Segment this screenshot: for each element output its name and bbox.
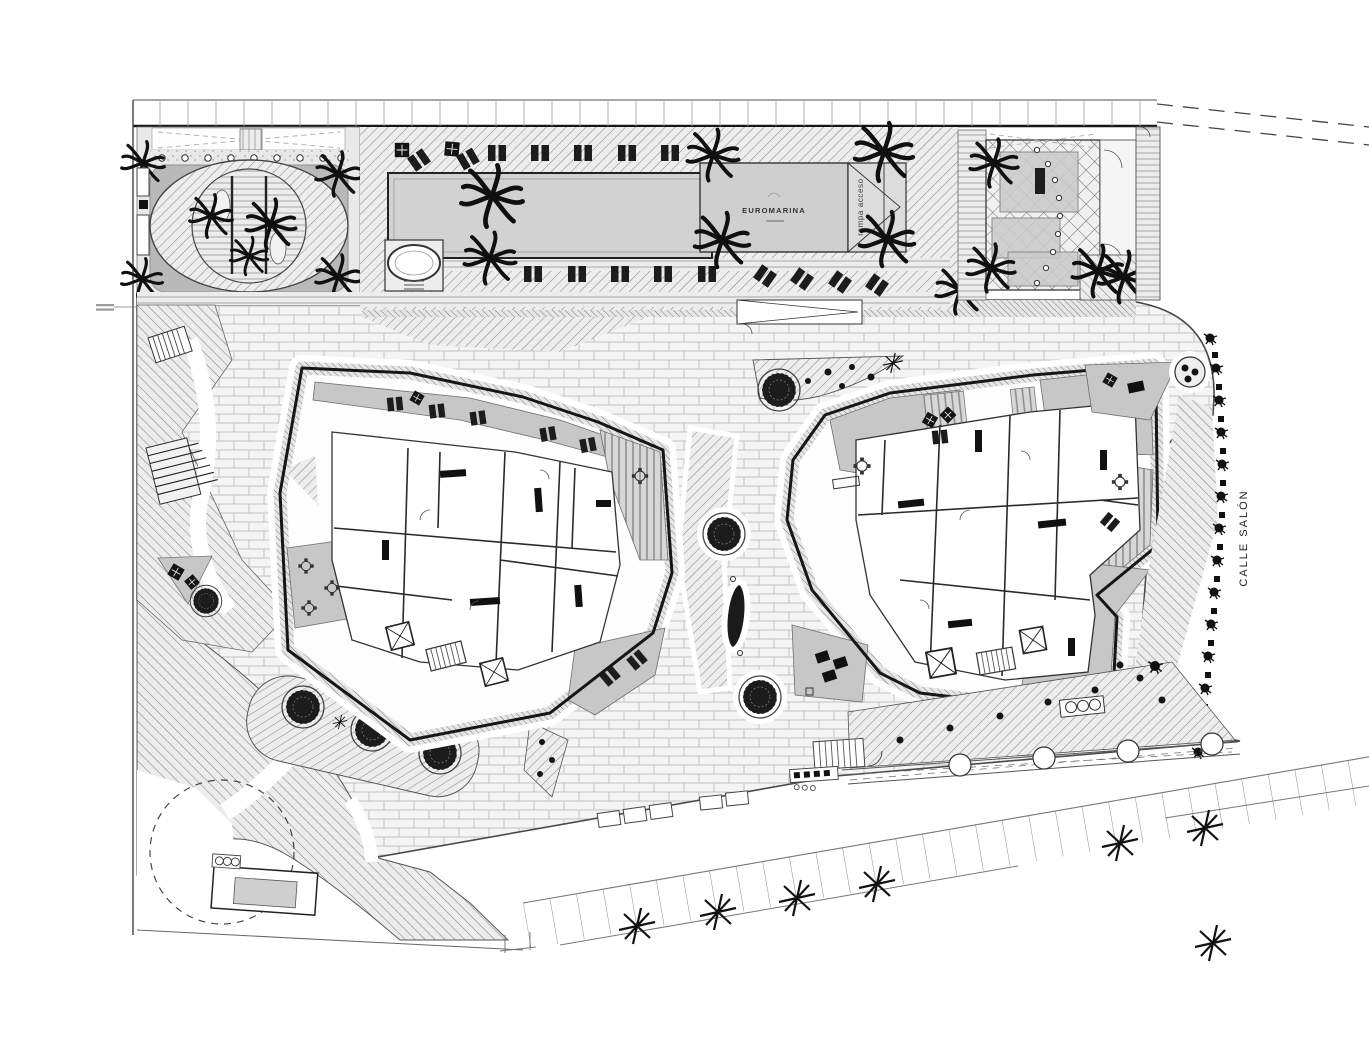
planting-oval-2: [270, 232, 286, 264]
sidewalk-east-strip: [1136, 127, 1160, 300]
ramp-strip: [240, 129, 262, 150]
pool-terrace-central: EUROMARINA rampa acceso: [360, 123, 984, 334]
elevator-icon: [386, 622, 414, 650]
bike-rack: [790, 766, 839, 792]
south-deck-band: [137, 292, 360, 305]
site-plan: EUROMARINA rampa acceso: [0, 0, 1369, 1054]
planter-tree-icon: [282, 686, 324, 728]
planter-tree-icon: [758, 369, 800, 411]
street-label: CALLE SALÓN: [1237, 489, 1250, 586]
feature: [1035, 168, 1045, 194]
pool-garden-west: [122, 127, 361, 305]
road-joints: [160, 100, 1140, 126]
elevator-icon: [1019, 626, 1046, 653]
pavilion-label: EUROMARINA: [742, 206, 806, 215]
planter-tree-icon: [190, 585, 222, 617]
corner-planter: [1175, 357, 1205, 387]
garden-northeast: [958, 127, 1160, 303]
floor-core: [332, 432, 620, 670]
road-dashed-2: [1157, 122, 1369, 145]
elevator-icon: [926, 648, 956, 678]
planter-tree-icon: [703, 513, 745, 555]
ramp-label: rampa acceso: [856, 178, 865, 235]
edge-label-smudge: [96, 304, 136, 311]
panel: [1008, 252, 1078, 286]
street-palm-icon: [1195, 925, 1231, 961]
spa: [385, 240, 443, 291]
planter-tree-icon: [739, 676, 781, 718]
equipment-unit: [139, 200, 148, 209]
road-dashed-1: [1157, 104, 1369, 127]
elevator-icon: [480, 658, 508, 686]
equipment-box: [137, 168, 149, 196]
equipment-box: [137, 215, 149, 255]
building-west: [280, 368, 672, 740]
site-plan-svg: EUROMARINA rampa acceso: [0, 0, 1369, 1054]
building-east: [787, 361, 1178, 710]
